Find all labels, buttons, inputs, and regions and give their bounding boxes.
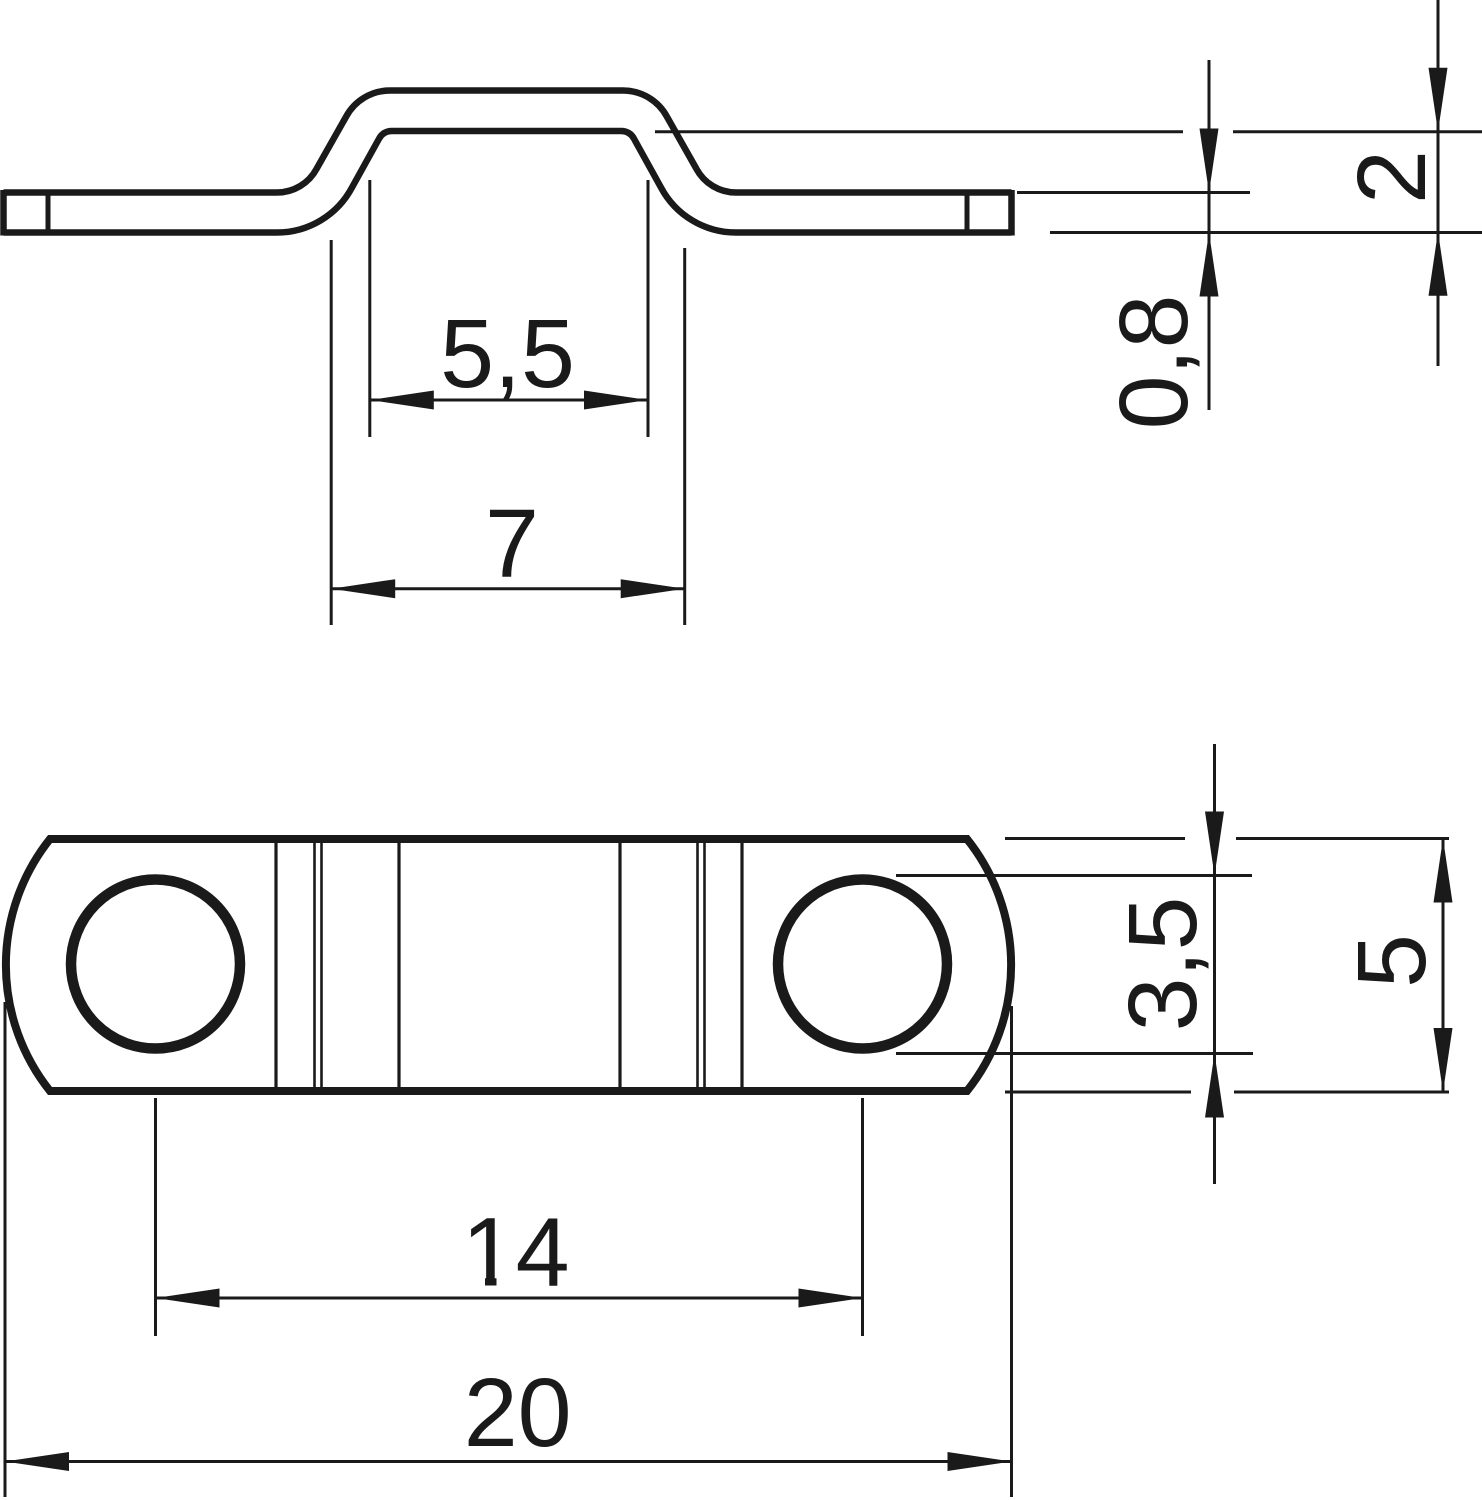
svg-text:3,5: 3,5: [1108, 897, 1217, 1032]
svg-text:0,8: 0,8: [1099, 295, 1208, 430]
svg-text:5,5: 5,5: [440, 299, 575, 408]
svg-text:20: 20: [464, 1358, 572, 1467]
svg-text:2: 2: [1337, 150, 1446, 204]
svg-text:14: 14: [462, 1197, 570, 1306]
svg-text:7: 7: [485, 489, 539, 598]
svg-text:5: 5: [1337, 934, 1446, 988]
